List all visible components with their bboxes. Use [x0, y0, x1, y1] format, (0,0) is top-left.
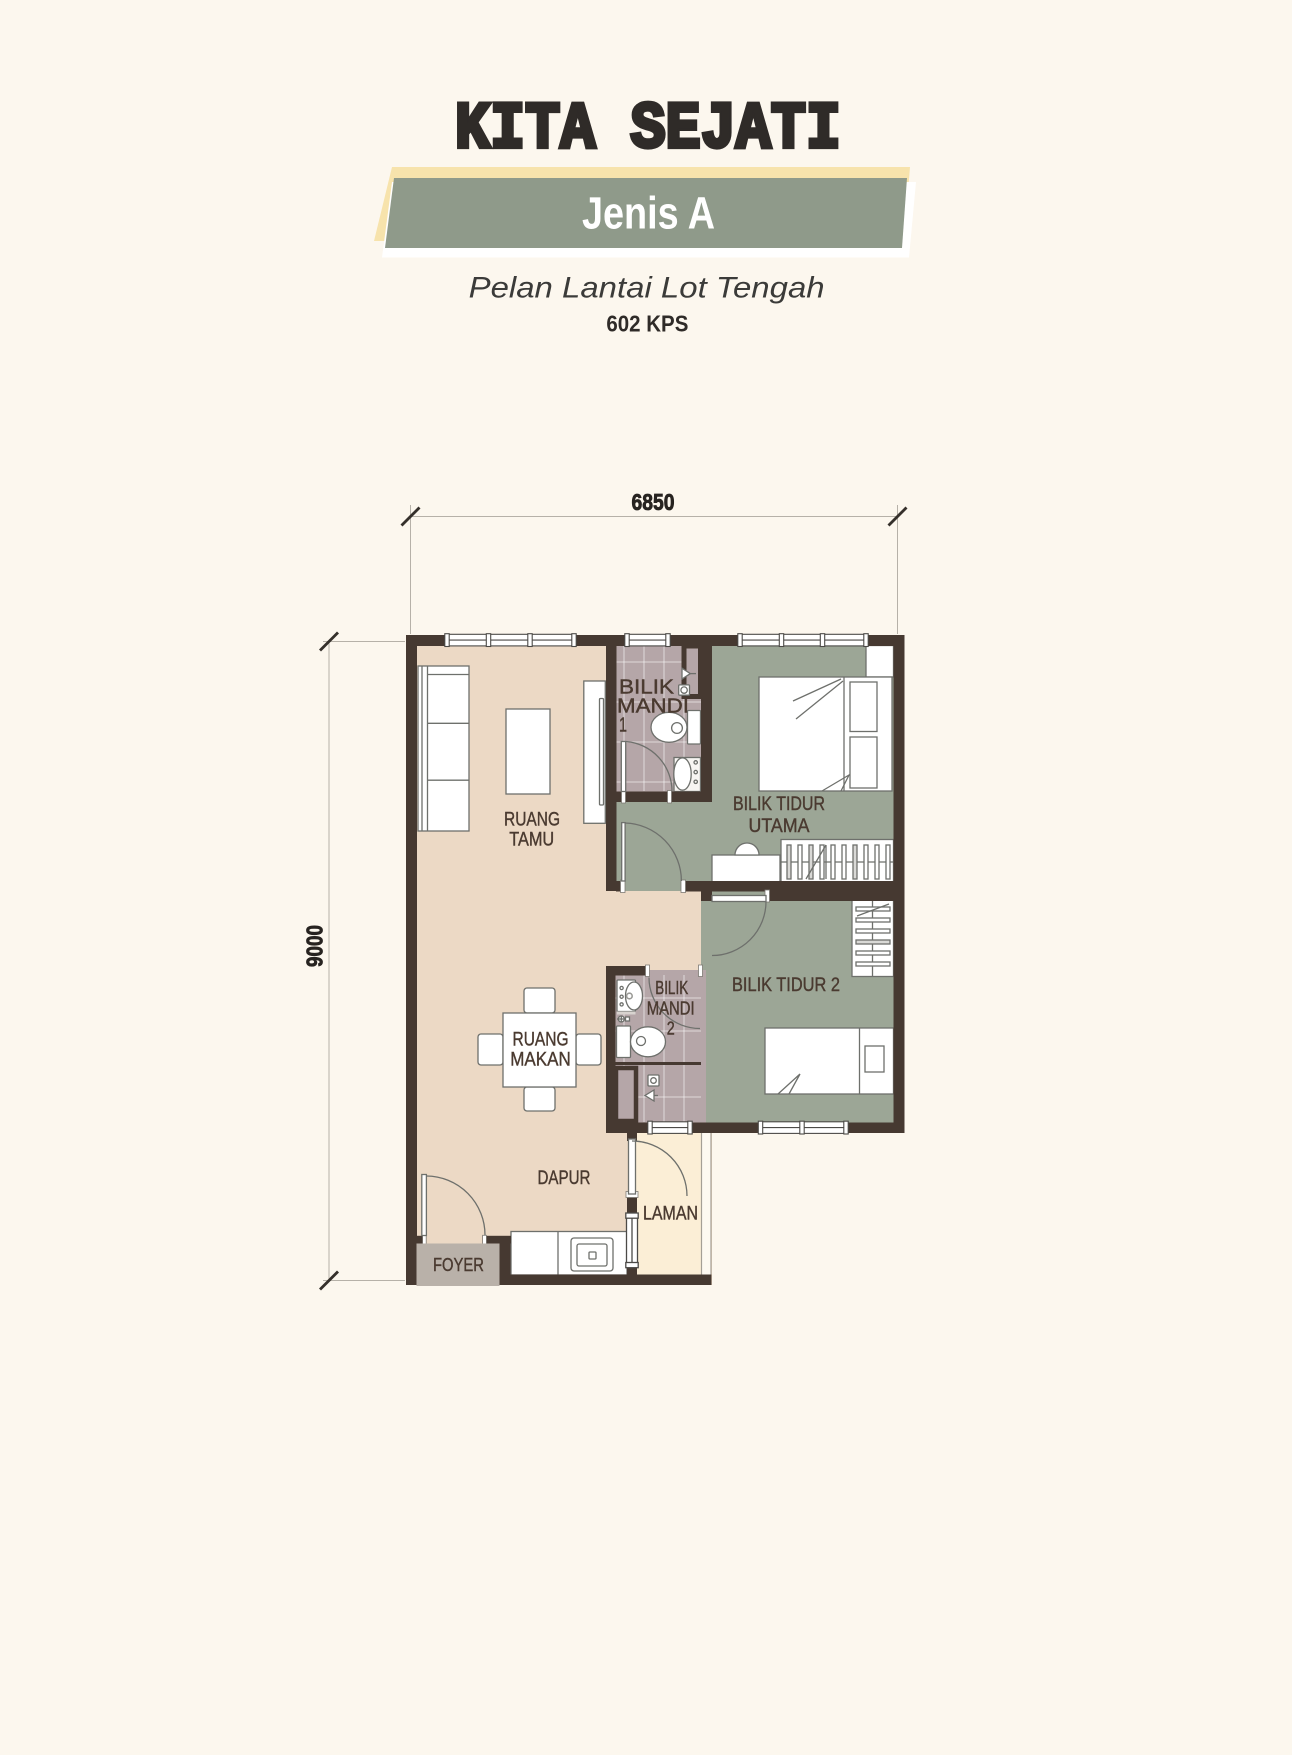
svg-text:1: 1	[619, 715, 627, 737]
svg-text:BILIK TIDUR: BILIK TIDUR	[733, 793, 825, 815]
svg-text:602 KPS: 602 KPS	[606, 311, 688, 337]
svg-text:MANDI: MANDI	[617, 696, 689, 718]
svg-text:TAMU: TAMU	[509, 829, 554, 851]
svg-text:2: 2	[667, 1019, 675, 1039]
svg-text:BILIK: BILIK	[655, 978, 688, 998]
svg-text:MANDI: MANDI	[647, 999, 695, 1019]
svg-text:FOYER: FOYER	[433, 1254, 484, 1275]
svg-text:RUANG: RUANG	[513, 1029, 569, 1051]
svg-text:BILIK TIDUR 2: BILIK TIDUR 2	[732, 974, 840, 996]
svg-text:MAKAN: MAKAN	[510, 1049, 571, 1071]
svg-text:Jenis A: Jenis A	[582, 188, 715, 239]
svg-text:6850: 6850	[632, 489, 675, 515]
svg-text:9000: 9000	[302, 925, 328, 967]
svg-text:KITA SEJATI: KITA SEJATI	[455, 92, 841, 167]
svg-text:Pelan Lantai Lot Tengah: Pelan Lantai Lot Tengah	[469, 272, 825, 305]
svg-text:UTAMA: UTAMA	[749, 815, 810, 837]
svg-text:LAMAN: LAMAN	[643, 1203, 698, 1225]
svg-text:RUANG: RUANG	[504, 809, 560, 831]
svg-text:DAPUR: DAPUR	[538, 1167, 591, 1189]
